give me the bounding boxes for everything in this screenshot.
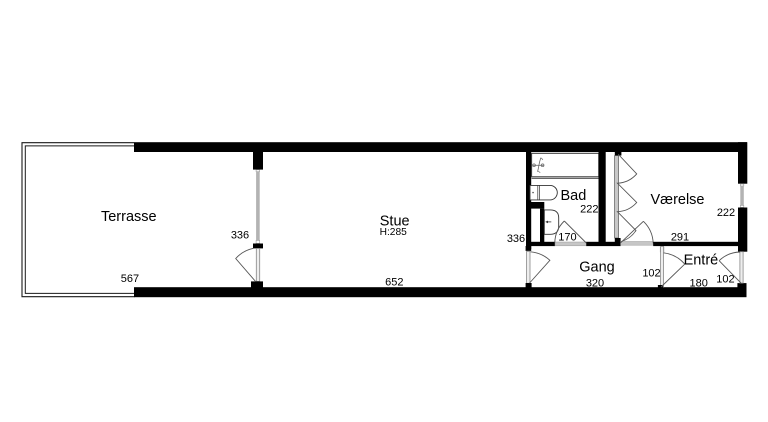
svg-text:H:285: H:285 <box>380 227 408 238</box>
svg-text:Entré: Entré <box>684 252 719 268</box>
svg-text:Værelse: Værelse <box>651 192 705 208</box>
svg-text:180: 180 <box>690 278 708 290</box>
svg-text:291: 291 <box>671 231 689 243</box>
svg-text:102: 102 <box>642 268 660 280</box>
svg-text:652: 652 <box>385 277 403 289</box>
svg-text:Terrasse: Terrasse <box>101 209 157 225</box>
svg-text:222: 222 <box>580 203 598 215</box>
svg-text:222: 222 <box>717 207 735 219</box>
svg-text:Gang: Gang <box>579 259 614 275</box>
svg-text:Bad: Bad <box>560 188 586 204</box>
svg-text:336: 336 <box>507 233 525 245</box>
svg-text:567: 567 <box>121 273 139 285</box>
svg-text:102: 102 <box>716 274 734 286</box>
svg-text:320: 320 <box>586 278 604 290</box>
svg-text:170: 170 <box>558 232 576 244</box>
svg-text:336: 336 <box>231 230 249 242</box>
